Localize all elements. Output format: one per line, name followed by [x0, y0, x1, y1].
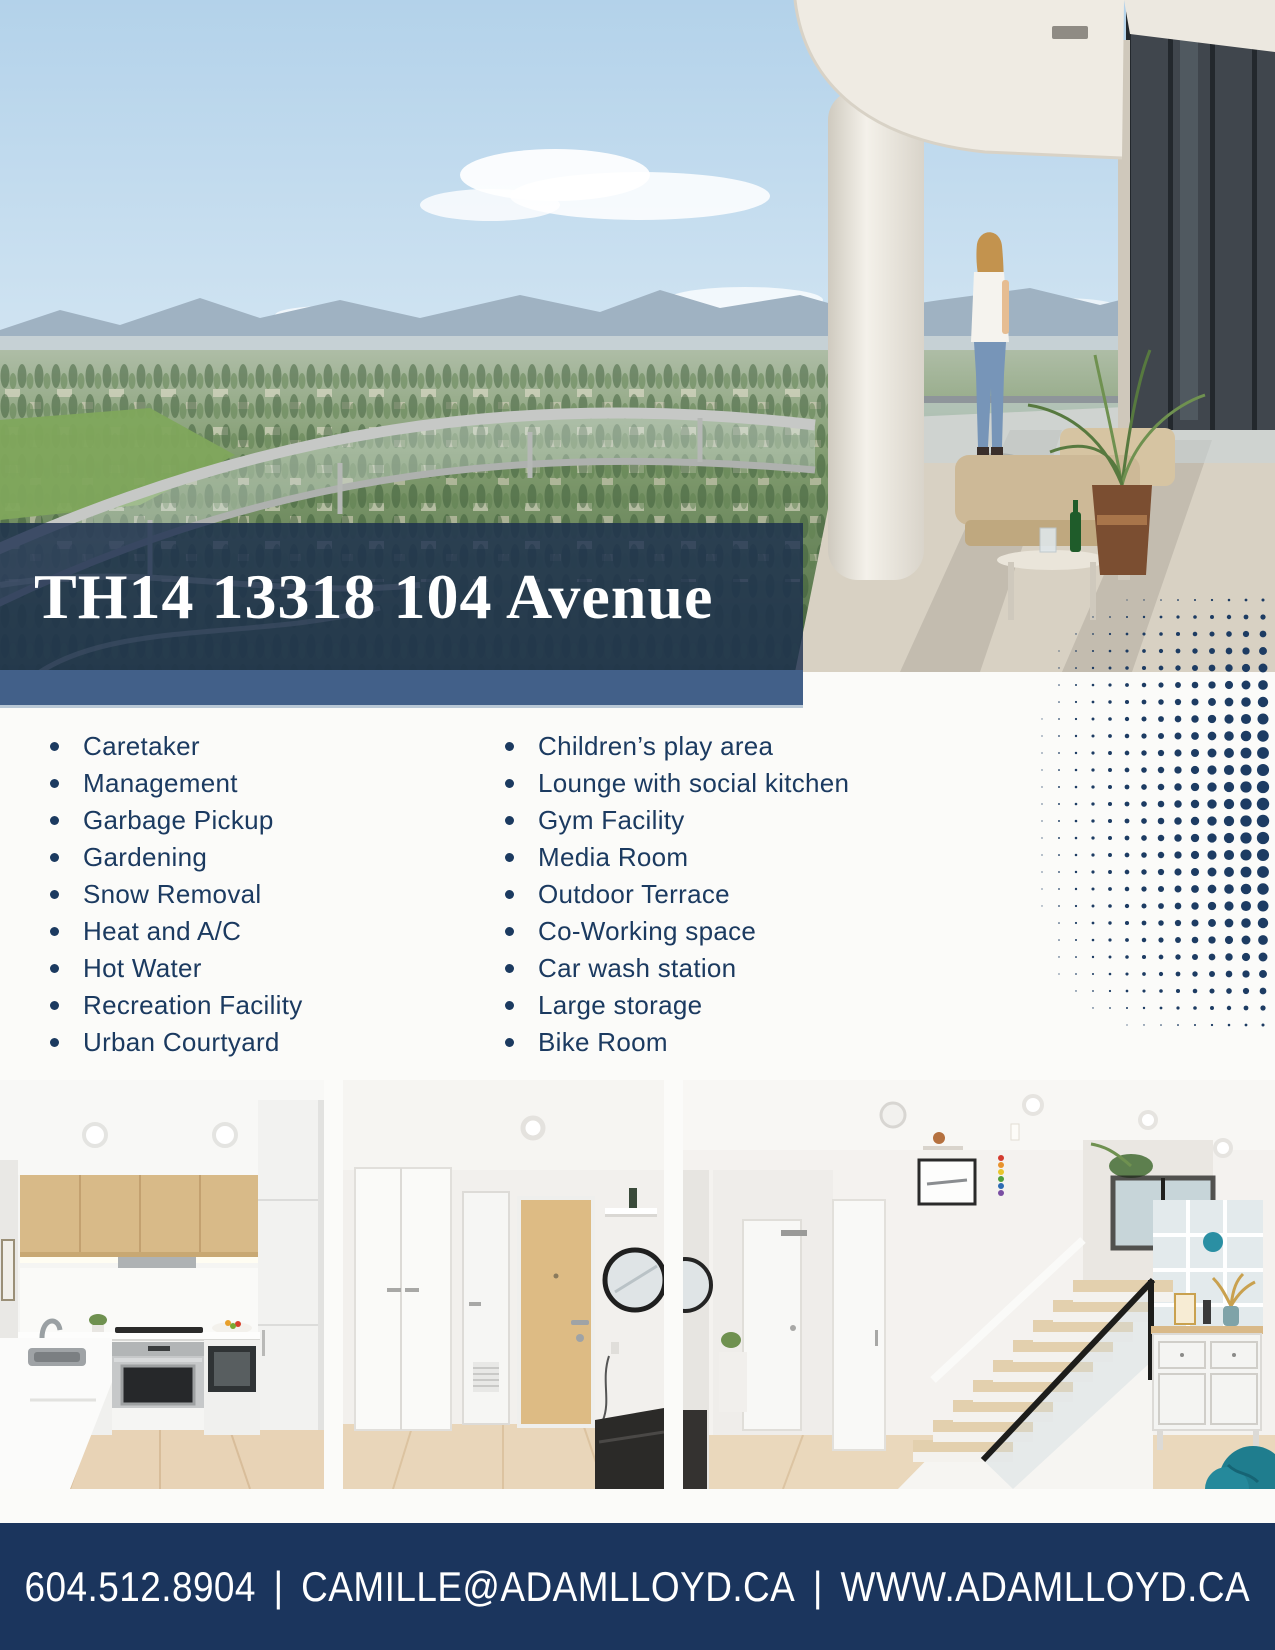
bullet-icon: [50, 1038, 59, 1047]
amenity-label: Management: [83, 768, 238, 799]
bullet-icon: [50, 927, 59, 936]
amenity-item: Outdoor Terrace: [505, 876, 849, 913]
bullet-icon: [505, 890, 514, 899]
bullet-icon: [50, 890, 59, 899]
bullet-icon: [505, 1038, 514, 1047]
amenity-label: Urban Courtyard: [83, 1027, 280, 1058]
amenity-item: Large storage: [505, 987, 849, 1024]
amenity-item: Urban Courtyard: [50, 1024, 303, 1061]
amenity-item: Heat and A/C: [50, 913, 303, 950]
amenity-item: Recreation Facility: [50, 987, 303, 1024]
amenity-label: Co-Working space: [538, 916, 756, 947]
amenity-item: Gym Facility: [505, 802, 849, 839]
bullet-icon: [505, 742, 514, 751]
website-url: WWW.ADAMLLOYD.CA: [841, 1563, 1251, 1610]
email-address: CAMILLE@ADAMLLOYD.CA: [301, 1563, 795, 1610]
amenity-label: Outdoor Terrace: [538, 879, 730, 910]
contact-footer: 604.512.8904|CAMILLE@ADAMLLOYD.CA|WWW.AD…: [0, 1523, 1275, 1650]
amenity-label: Gym Facility: [538, 805, 685, 836]
staircase-photo: [683, 1080, 1275, 1489]
phone-number: 604.512.8904: [25, 1563, 256, 1610]
amenity-label: Media Room: [538, 842, 688, 873]
bullet-icon: [50, 964, 59, 973]
amenity-label: Lounge with social kitchen: [538, 768, 849, 799]
amenities-section: Caretaker Management Garbage Pickup Gard…: [0, 728, 1010, 1068]
amenity-label: Caretaker: [83, 731, 200, 762]
separator: |: [813, 1563, 823, 1610]
amenity-label: Hot Water: [83, 953, 202, 984]
bullet-icon: [505, 964, 514, 973]
steel-accent-bar: [0, 670, 803, 708]
amenity-item: Snow Removal: [50, 876, 303, 913]
amenity-label: Snow Removal: [83, 879, 261, 910]
bullet-icon: [50, 1001, 59, 1010]
bullet-icon: [505, 816, 514, 825]
amenity-item: Children’s play area: [505, 728, 849, 765]
bullet-icon: [505, 853, 514, 862]
flyer-page: TH14 13318 104 Avenue Caretaker Manageme…: [0, 0, 1275, 1650]
amenity-item: Co-Working space: [505, 913, 849, 950]
amenity-item: Garbage Pickup: [50, 802, 303, 839]
property-title: TH14 13318 104 Avenue: [34, 560, 713, 634]
bullet-icon: [50, 816, 59, 825]
amenity-label: Car wash station: [538, 953, 736, 984]
amenities-left-list: Caretaker Management Garbage Pickup Gard…: [50, 728, 303, 1061]
amenity-item: Bike Room: [505, 1024, 849, 1061]
amenity-item: Car wash station: [505, 950, 849, 987]
bullet-icon: [505, 927, 514, 936]
interior-photo-gallery: [0, 1080, 1275, 1489]
amenity-label: Bike Room: [538, 1027, 668, 1058]
amenity-label: Gardening: [83, 842, 207, 873]
contact-line: 604.512.8904|CAMILLE@ADAMLLOYD.CA|WWW.AD…: [25, 1563, 1250, 1611]
amenities-right-list: Children’s play area Lounge with social …: [505, 728, 849, 1061]
title-banner: TH14 13318 104 Avenue: [0, 523, 803, 670]
bullet-icon: [50, 853, 59, 862]
kitchen-photo: [0, 1080, 324, 1489]
halftone-dots-pattern: [1000, 592, 1275, 1036]
amenity-item: Lounge with social kitchen: [505, 765, 849, 802]
amenity-label: Recreation Facility: [83, 990, 303, 1021]
bullet-icon: [50, 779, 59, 788]
bullet-icon: [505, 779, 514, 788]
amenity-label: Garbage Pickup: [83, 805, 274, 836]
amenity-label: Children’s play area: [538, 731, 773, 762]
amenity-item: Media Room: [505, 839, 849, 876]
amenity-item: Management: [50, 765, 303, 802]
entry-photo: [343, 1080, 664, 1489]
amenity-label: Large storage: [538, 990, 702, 1021]
bullet-icon: [50, 742, 59, 751]
amenity-item: Caretaker: [50, 728, 303, 765]
bullet-icon: [505, 1001, 514, 1010]
separator: |: [274, 1563, 284, 1610]
amenity-item: Gardening: [50, 839, 303, 876]
amenity-item: Hot Water: [50, 950, 303, 987]
amenity-label: Heat and A/C: [83, 916, 241, 947]
